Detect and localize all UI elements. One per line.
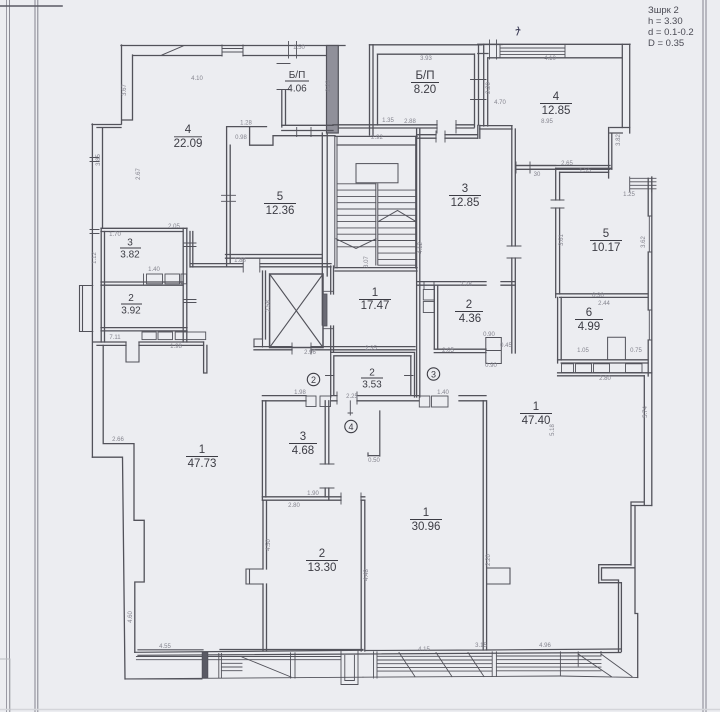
svg-text:4.10: 4.10 <box>544 56 556 62</box>
svg-text:4.99: 4.99 <box>578 321 600 333</box>
svg-text:4.70: 4.70 <box>494 100 506 106</box>
svg-text:1.70: 1.70 <box>109 232 121 238</box>
svg-text:1.88: 1.88 <box>234 258 246 264</box>
svg-text:12.85: 12.85 <box>542 105 571 117</box>
svg-text:0.45: 0.45 <box>500 343 512 349</box>
svg-text:0.98: 0.98 <box>235 135 247 141</box>
svg-text:Б/П: Б/П <box>289 70 306 81</box>
svg-text:0.50: 0.50 <box>368 458 380 464</box>
svg-text:3: 3 <box>127 238 133 249</box>
svg-text:4.55: 4.55 <box>159 644 171 650</box>
svg-text:47.73: 47.73 <box>188 458 217 470</box>
svg-text:17.47: 17.47 <box>361 300 390 312</box>
svg-text:3.82: 3.82 <box>616 134 622 146</box>
svg-text:2.05: 2.05 <box>168 224 180 230</box>
svg-text:2: 2 <box>369 368 375 379</box>
svg-text:1.25: 1.25 <box>623 192 635 198</box>
svg-text:22.09: 22.09 <box>174 138 203 150</box>
svg-text:2.44: 2.44 <box>598 301 610 307</box>
svg-text:2.20: 2.20 <box>486 82 492 94</box>
svg-text:2.20: 2.20 <box>486 554 492 566</box>
svg-text:47.40: 47.40 <box>522 415 551 427</box>
svg-text:3: 3 <box>462 183 468 195</box>
svg-text:1.98: 1.98 <box>294 390 306 396</box>
svg-text:12.85: 12.85 <box>451 197 480 209</box>
svg-text:3: 3 <box>300 431 306 443</box>
svg-text:30: 30 <box>534 172 541 178</box>
svg-text:2.80: 2.80 <box>599 376 611 382</box>
svg-text:13.30: 13.30 <box>308 562 337 574</box>
svg-text:1: 1 <box>372 287 378 299</box>
svg-text:8.20: 8.20 <box>414 84 436 96</box>
svg-text:4: 4 <box>348 422 353 432</box>
svg-text:2.66: 2.66 <box>112 437 124 443</box>
svg-text:2.65: 2.65 <box>561 161 573 167</box>
svg-text:0.90: 0.90 <box>485 363 497 369</box>
svg-text:3.07: 3.07 <box>364 256 370 268</box>
svg-text:2.05: 2.05 <box>442 348 454 354</box>
svg-text:10.17: 10.17 <box>592 242 621 254</box>
svg-text:2: 2 <box>311 375 316 385</box>
svg-text:4.10: 4.10 <box>191 76 203 82</box>
svg-text:3.82: 3.82 <box>120 250 140 261</box>
svg-text:2.92: 2.92 <box>371 135 383 141</box>
svg-text:3.15: 3.15 <box>475 643 487 649</box>
svg-text:1.40: 1.40 <box>148 267 160 273</box>
svg-text:2.23: 2.23 <box>326 80 332 92</box>
svg-text:2.88: 2.88 <box>404 119 416 125</box>
svg-text:4.48: 4.48 <box>364 569 370 581</box>
svg-text:4.50: 4.50 <box>266 539 272 551</box>
svg-text:0.75: 0.75 <box>630 348 642 354</box>
svg-text:1.40: 1.40 <box>437 390 449 396</box>
svg-text:h = 3.30: h = 3.30 <box>648 16 683 27</box>
svg-text:4: 4 <box>553 91 560 103</box>
svg-text:1: 1 <box>533 401 539 413</box>
svg-text:1.12: 1.12 <box>92 252 98 264</box>
svg-text:3: 3 <box>431 370 436 380</box>
svg-text:0.30: 0.30 <box>592 293 604 299</box>
svg-text:0.90: 0.90 <box>483 332 495 338</box>
svg-text:d = 0.1-0.2: d = 0.1-0.2 <box>648 27 694 38</box>
svg-text:1.50: 1.50 <box>293 45 305 51</box>
svg-text:2.58: 2.58 <box>266 300 272 312</box>
svg-text:2.80: 2.80 <box>288 503 300 509</box>
svg-text:4.12: 4.12 <box>418 242 424 254</box>
svg-text:3.92: 3.92 <box>121 306 141 317</box>
svg-text:3.93: 3.93 <box>420 56 432 62</box>
svg-text:1.55: 1.55 <box>579 168 591 174</box>
svg-text:1.98: 1.98 <box>170 344 182 350</box>
svg-text:5.74: 5.74 <box>643 406 649 418</box>
svg-text:2.25: 2.25 <box>346 394 358 400</box>
svg-text:2.35: 2.35 <box>365 346 377 352</box>
svg-text:3.62: 3.62 <box>641 236 647 248</box>
svg-text:D = 0.35: D = 0.35 <box>648 38 684 49</box>
svg-text:4.60: 4.60 <box>128 611 134 623</box>
svg-text:1.05: 1.05 <box>577 348 589 354</box>
svg-text:2: 2 <box>128 293 134 304</box>
svg-text:6: 6 <box>586 307 592 319</box>
svg-text:4.68: 4.68 <box>292 445 314 457</box>
svg-text:4.15: 4.15 <box>418 647 430 653</box>
svg-text:5: 5 <box>277 191 283 203</box>
svg-text:8.95: 8.95 <box>541 119 553 125</box>
svg-text:5.18: 5.18 <box>550 424 556 436</box>
svg-text:3.61: 3.61 <box>559 234 565 246</box>
svg-text:3.53: 3.53 <box>362 380 382 391</box>
svg-text:12.36: 12.36 <box>266 205 295 217</box>
svg-text:7.11: 7.11 <box>109 335 121 341</box>
svg-text:4.36: 4.36 <box>459 313 481 325</box>
svg-text:2: 2 <box>466 299 472 311</box>
svg-text:5: 5 <box>603 228 609 240</box>
svg-text:4.06: 4.06 <box>287 84 307 95</box>
svg-text:1.28: 1.28 <box>240 121 252 127</box>
svg-text:Б/П: Б/П <box>415 70 434 82</box>
svg-text:3.67: 3.67 <box>122 84 128 96</box>
svg-text:1: 1 <box>423 507 429 519</box>
svg-text:4.96: 4.96 <box>539 643 551 649</box>
svg-text:1: 1 <box>199 444 205 456</box>
svg-text:2.67: 2.67 <box>136 168 142 180</box>
svg-text:1.35: 1.35 <box>382 118 394 124</box>
svg-text:3.85: 3.85 <box>96 154 102 166</box>
svg-text:4: 4 <box>185 124 192 136</box>
svg-text:1.90: 1.90 <box>307 491 319 497</box>
svg-text:Зшрк 2: Зшрк 2 <box>648 5 679 16</box>
svg-text:2.96: 2.96 <box>304 350 316 356</box>
svg-text:2: 2 <box>319 548 325 560</box>
svg-text:30.96: 30.96 <box>412 521 441 533</box>
svg-text:2.78: 2.78 <box>460 282 472 288</box>
